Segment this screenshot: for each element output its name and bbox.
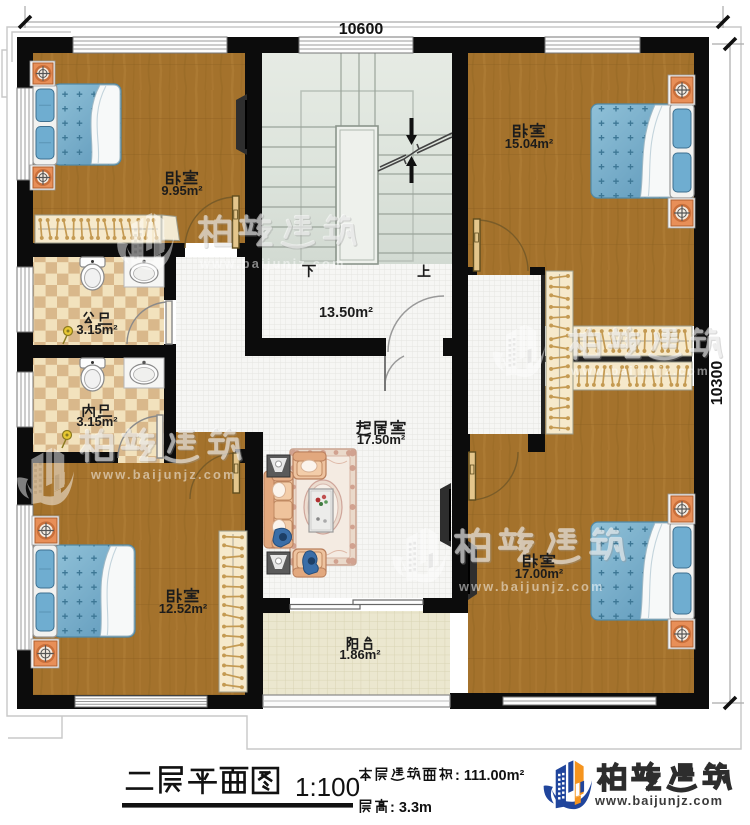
svg-text:www.baijunjz.com: www.baijunjz.com bbox=[90, 467, 237, 482]
svg-text:www.baijunjz.com: www.baijunjz.com bbox=[594, 793, 723, 808]
svg-text:: 111.00m²: : 111.00m² bbox=[455, 768, 524, 784]
svg-text:1:100: 1:100 bbox=[295, 772, 360, 802]
svg-text:www.baijunjz.com: www.baijunjz.com bbox=[570, 364, 710, 378]
svg-text:10300: 10300 bbox=[709, 361, 726, 406]
svg-text:3.15m²: 3.15m² bbox=[76, 322, 118, 337]
svg-text:: 3.3m: : 3.3m bbox=[390, 800, 432, 816]
svg-text:17.00m²: 17.00m² bbox=[515, 566, 564, 581]
svg-text:10600: 10600 bbox=[339, 21, 384, 38]
svg-text:3.15m²: 3.15m² bbox=[76, 414, 118, 429]
svg-text:17.50m²: 17.50m² bbox=[357, 432, 406, 447]
svg-text:9.95m²: 9.95m² bbox=[161, 183, 203, 198]
svg-text:15.04m²: 15.04m² bbox=[505, 136, 554, 151]
svg-text:www.baijunjz.com: www.baijunjz.com bbox=[458, 579, 605, 594]
svg-text:www.baijunjz.com: www.baijunjz.com bbox=[199, 256, 346, 271]
svg-text:12.52m²: 12.52m² bbox=[159, 601, 208, 616]
svg-text:13.50m²: 13.50m² bbox=[319, 305, 373, 321]
svg-text:1.86m²: 1.86m² bbox=[339, 647, 381, 662]
